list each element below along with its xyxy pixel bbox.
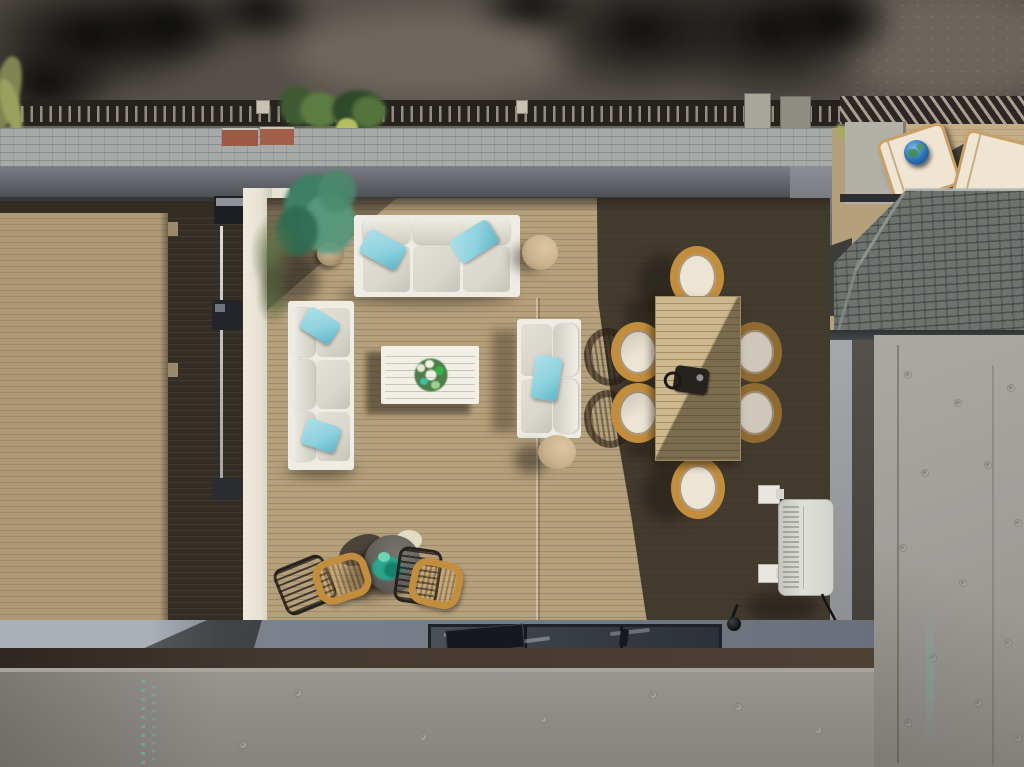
shingle-roof-strip <box>0 128 832 170</box>
globe <box>904 140 929 165</box>
dining-chair <box>671 457 725 519</box>
tree-shadow <box>770 0 900 60</box>
concrete-shading <box>0 672 874 767</box>
seat-cushion <box>413 246 460 292</box>
bistro-plant <box>378 552 390 562</box>
dark-strip-planks <box>168 213 243 633</box>
wreath-flower <box>425 360 434 368</box>
left-deck-edge-shade <box>160 213 168 633</box>
seat-cushion <box>317 360 350 409</box>
chimney-cap <box>260 127 294 145</box>
tree-shadow <box>200 0 320 45</box>
grill-item <box>672 365 709 395</box>
strip-notch <box>168 222 178 236</box>
hvac-unit <box>778 499 834 596</box>
left-deck-planks <box>0 213 168 633</box>
concrete-wall-right <box>874 335 1024 767</box>
roof-ridge-highlight <box>905 188 1024 191</box>
wreath-leaf <box>431 381 440 389</box>
railing-post <box>744 93 771 133</box>
metal-pole <box>220 226 223 494</box>
wreath <box>412 356 450 394</box>
pole-top-fitting <box>214 196 246 224</box>
pole-bracket-face <box>215 304 225 312</box>
railing-bracket <box>516 100 528 114</box>
globe-land <box>917 144 924 150</box>
lounger-seam <box>887 141 906 193</box>
grill-knob <box>696 374 704 382</box>
wreath-flower <box>417 364 425 372</box>
concrete-wall-bottom <box>0 672 874 767</box>
back-cushion <box>291 360 315 409</box>
pole-bracket <box>212 300 242 330</box>
wreath-berry <box>435 366 444 375</box>
left-deck-walkway <box>0 213 168 633</box>
potted-plant-foliage <box>318 170 356 212</box>
pendant-light <box>727 617 741 631</box>
concrete-shading <box>874 335 1024 767</box>
railing-bracket <box>256 100 270 114</box>
strip-notch <box>168 363 178 377</box>
lounger-seam <box>965 134 981 191</box>
chimney-cap <box>222 128 258 146</box>
street-pavement <box>0 0 1024 104</box>
dark-deck-strip <box>168 213 243 633</box>
side-table-bottom <box>538 435 576 469</box>
hvac-arm <box>776 489 784 499</box>
globe-land <box>908 149 918 157</box>
aerial-rooftop-photo <box>0 0 1024 767</box>
wreath-accent <box>420 378 428 385</box>
pole-base <box>212 478 242 500</box>
hvac-panel-seam <box>803 506 830 589</box>
side-table-top <box>522 235 558 270</box>
pole-top-face <box>216 198 244 206</box>
loveseat-shadow <box>492 330 518 432</box>
trailing-plant <box>256 268 292 326</box>
dining-table <box>655 296 741 461</box>
hvac-vents <box>783 506 799 589</box>
